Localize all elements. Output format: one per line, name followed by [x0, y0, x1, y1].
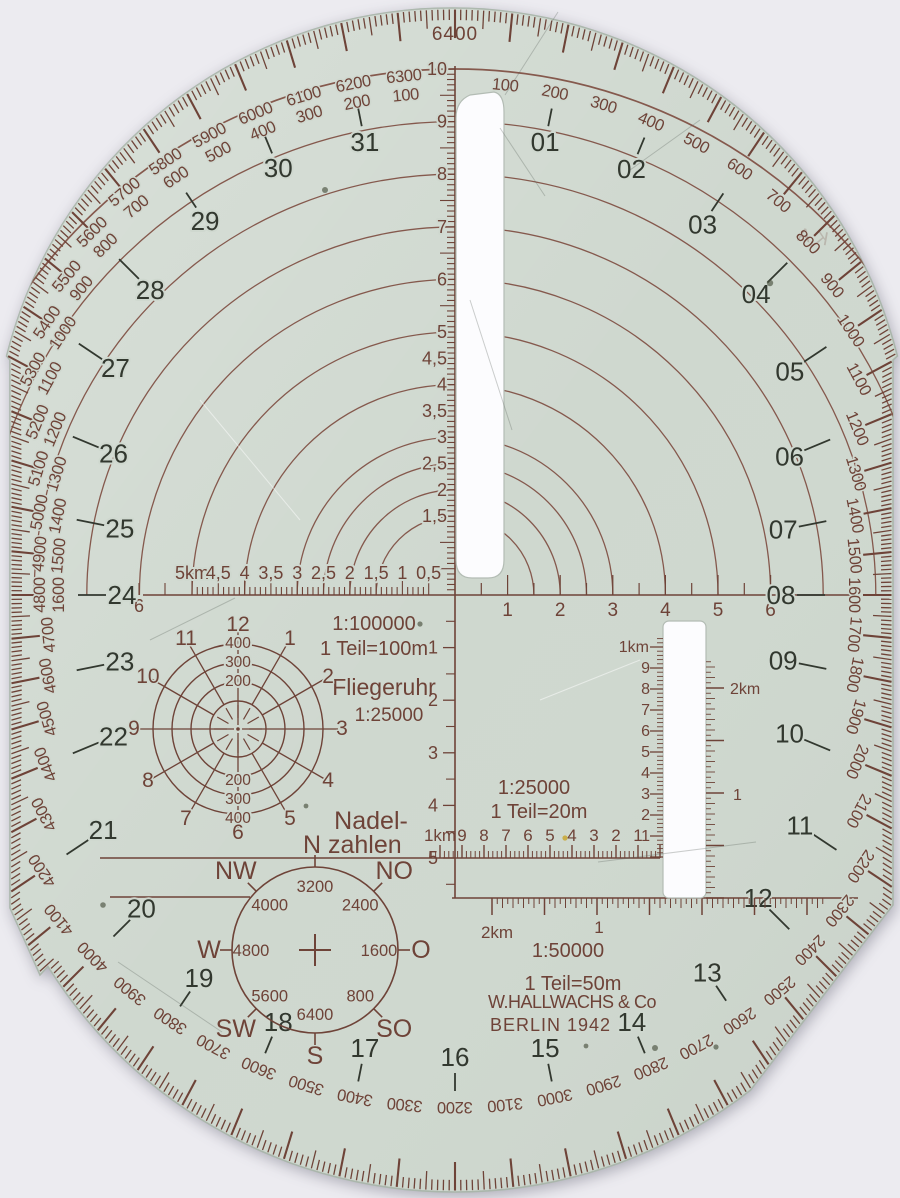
horizontal-km-label: 4	[240, 563, 250, 583]
mil-big-number: 09	[769, 645, 798, 675]
horizontal-km-label: 4	[660, 600, 671, 621]
mil-value-label: 1600	[845, 577, 863, 613]
vertical-km-label: 4,5	[422, 348, 447, 368]
mil-big-number: 16	[441, 1042, 470, 1072]
fliegeruhr-range-label: 300	[225, 654, 251, 671]
ruler-25000-label: 2	[611, 826, 620, 845]
mil-value-label: 4700	[38, 616, 59, 653]
mil-big-number: 29	[191, 206, 220, 236]
vertical-km-label: 3	[437, 427, 447, 447]
mil-big-number: 21	[89, 815, 118, 845]
compass-mil-value: 1600	[361, 942, 398, 960]
mil-top-label: 6400	[432, 24, 478, 45]
fliegeruhr-clock-number: 3	[336, 717, 348, 740]
fliegeruhr-clock-number: 10	[136, 665, 159, 688]
ruler-25000-label: 5	[545, 826, 554, 845]
mil-big-number: 28	[136, 275, 165, 305]
horizontal-km-label: 4,5	[206, 563, 231, 583]
vertical-km-label: 10	[427, 59, 447, 79]
fliegeruhr-range-label: 200	[225, 673, 251, 690]
compass-direction-label: S	[307, 1042, 324, 1070]
mil-big-number: 25	[105, 513, 134, 543]
ruler-50000-label: 2km	[481, 923, 513, 942]
compass-direction-label: SO	[376, 1015, 412, 1043]
mil-big-number: 03	[688, 209, 717, 239]
ruler-25000-title: 1:25000	[498, 777, 570, 799]
horizontal-km-label: 3	[608, 600, 619, 621]
fliegeruhr-range-label: 400	[225, 635, 251, 652]
slot-scale-label: 8	[641, 681, 650, 698]
mil-big-number: 20	[127, 894, 156, 924]
ruler-25000-label: 4	[567, 826, 576, 845]
compass-mil-value: 4000	[251, 897, 288, 915]
mil-big-number: 26	[99, 439, 128, 469]
fliegeruhr-range-label: 200	[225, 772, 251, 789]
mil-big-number: 12	[744, 883, 773, 913]
mil-big-number: 17	[350, 1033, 379, 1063]
mil-value-label: 1600	[50, 577, 68, 613]
mil-value-label: 4800	[31, 577, 49, 613]
compass-direction-label: W	[197, 936, 221, 964]
slot-scale-label: 2	[641, 807, 650, 824]
ruler-25000-label: 3	[589, 826, 598, 845]
fliegeruhr-clock-number: 6	[232, 821, 244, 844]
horizontal-km-label: 5	[713, 600, 724, 621]
vertical-km-label: 3	[428, 743, 438, 763]
vertical-km-label: 4	[428, 795, 438, 815]
mil-big-number: 13	[693, 957, 722, 987]
mil-big-number: 24	[108, 580, 137, 610]
vertical-km-label: 4	[437, 375, 447, 395]
fliegeruhr-clock-number: 4	[322, 769, 334, 792]
mil-value-label: 6300	[385, 66, 422, 87]
vertical-km-label: 1,5	[422, 506, 447, 526]
ruler-25000-label: 7	[501, 826, 510, 845]
fliegeruhr-clock-number: 7	[180, 807, 192, 830]
mil-value-label: 3200	[437, 1098, 473, 1116]
vertical-km-label: 7	[437, 217, 447, 237]
scanned-protractor-photo: 10987654,543,532,521,5123455km4,543,532,…	[0, 0, 900, 1198]
slot-scale-label: 6	[641, 723, 650, 740]
mil-big-number: 19	[185, 963, 214, 993]
mil-value-label: 1700	[844, 616, 865, 653]
ruler-25000-label: 6	[523, 826, 532, 845]
ruler-25000-label: 8	[479, 826, 488, 845]
ruler-25000-subtitle: 1 Teil=20m	[491, 801, 588, 823]
mil-big-number: 05	[775, 356, 804, 386]
compass-mil-value: 3200	[297, 878, 334, 896]
horizontal-km-label: 5km	[175, 563, 209, 583]
slot-scale-label: 1	[641, 828, 650, 845]
slot-scale-label: 9	[641, 660, 650, 677]
mil-big-number: 04	[742, 279, 771, 309]
vertical-km-label: 1	[428, 638, 438, 658]
horizontal-km-label: 1	[397, 563, 407, 583]
fliegeruhr-title: Fliegeruhr	[332, 674, 436, 700]
ruler-50000-title: 1:50000	[532, 940, 604, 962]
mil-value-label: 3300	[386, 1094, 423, 1115]
horizontal-km-label: 3	[292, 563, 302, 583]
mil-big-number: 01	[531, 127, 560, 157]
horizontal-km-label: 2	[345, 563, 355, 583]
fliegeruhr-clock-number: 2	[322, 665, 334, 688]
vertical-km-label: 2	[437, 480, 447, 500]
compass-direction-label: O	[411, 936, 430, 964]
mil-big-number: 22	[99, 721, 128, 751]
horizontal-km-label: 3,5	[258, 563, 283, 583]
mil-big-number: 10	[775, 719, 804, 749]
fliegeruhr-clock-number: 12	[226, 613, 249, 636]
mil-big-number: 15	[531, 1033, 560, 1063]
compass-mil-value: 5600	[251, 987, 288, 1005]
vertical-km-label: 3,5	[422, 401, 447, 421]
mil-big-number: 31	[350, 127, 379, 157]
horizontal-km-label: 2,5	[311, 563, 336, 583]
ruler-25000-label: 1km	[424, 826, 456, 845]
mil-big-number: 06	[775, 441, 804, 471]
compass-direction-label: NW	[215, 857, 257, 885]
maker-date: BERLIN 1942	[490, 1015, 611, 1035]
ruler-100000-title: 1:100000	[332, 613, 415, 635]
fliegeruhr-clock-number: 1	[284, 627, 296, 650]
fliegeruhr-range-label: 300	[225, 791, 251, 808]
horizontal-km-label: 0,5	[416, 563, 441, 583]
fliegeruhr-clock-number: 8	[142, 769, 154, 792]
mil-value-label: 1500	[48, 537, 69, 574]
horizontal-km-label: 2	[555, 600, 566, 621]
mil-big-number: 11	[786, 810, 813, 840]
compass-mil-value: 6400	[297, 1006, 334, 1024]
mil-big-number: 07	[769, 515, 798, 545]
mil-value-label: 100	[392, 85, 420, 106]
maker-name: W.HALLWACHS & Co	[488, 992, 657, 1012]
fliegeruhr-clock-number: 5	[284, 807, 296, 830]
horizontal-km-label: 1,5	[364, 563, 389, 583]
compass-direction-label: NO	[375, 857, 413, 885]
fliegeruhr-clock-number: 9	[128, 717, 140, 740]
vertical-km-label: 8	[437, 164, 447, 184]
fliegeruhr-scale: 1:25000	[355, 705, 424, 726]
horizontal-km-label: 1	[502, 600, 513, 621]
slot-scale-label: 5	[641, 744, 650, 761]
fliegeruhr-clock-number: 11	[175, 627, 197, 650]
mil-big-number: 18	[264, 1007, 293, 1037]
ruler-100000-subtitle: 1 Teil=100m	[320, 638, 428, 660]
compass-mil-value: 800	[346, 987, 374, 1005]
slot-scale-label: 7	[641, 702, 650, 719]
mil-value-label: 3100	[487, 1094, 524, 1115]
mil-value-label: 4900	[29, 535, 50, 572]
slot-scale-label: 1km	[619, 639, 649, 656]
mil-big-number: 30	[264, 153, 293, 183]
mil-big-number: 08	[767, 580, 796, 610]
slot-scale-label: 3	[641, 786, 650, 803]
compass-mil-value: 4800	[233, 942, 270, 960]
slot-scale-label: 4	[641, 765, 650, 782]
ruler-25000-label: 9	[457, 826, 466, 845]
mil-value-label: 1500	[844, 537, 865, 574]
nadelzahlen-title: N zahlen	[303, 831, 402, 859]
vertical-km-label: 9	[437, 112, 447, 132]
vertical-km-label: 5	[428, 848, 438, 868]
ruler-50000-label: 1	[594, 918, 603, 937]
compass-mil-value: 2400	[342, 897, 379, 915]
vertical-km-label: 2,5	[422, 454, 447, 474]
mil-big-number: 27	[101, 353, 130, 383]
compass-direction-label: SW	[216, 1015, 257, 1043]
slot-scale-label: 2km	[730, 681, 760, 698]
slot-scale-label: 1	[733, 787, 742, 804]
mil-big-number: 23	[105, 647, 134, 677]
vertical-km-label: 5	[437, 322, 447, 342]
vertical-km-label: 6	[437, 269, 447, 289]
protractor-plate-svg: 10987654,543,532,521,5123455km4,543,532,…	[0, 0, 900, 1198]
